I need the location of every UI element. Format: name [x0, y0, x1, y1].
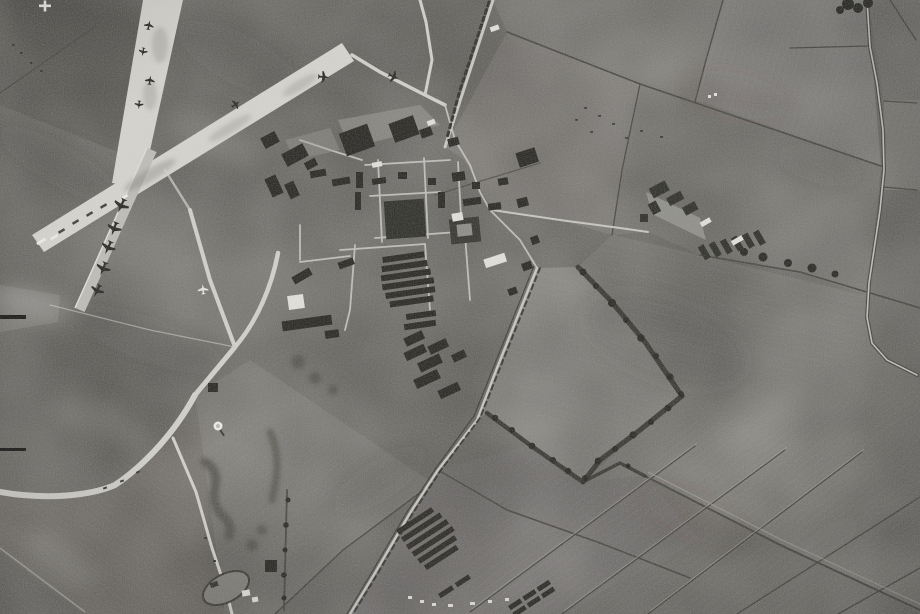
aerial-photo-canvas	[0, 0, 920, 614]
film-grain-overlay	[0, 0, 920, 614]
aerial-photograph	[0, 0, 920, 614]
